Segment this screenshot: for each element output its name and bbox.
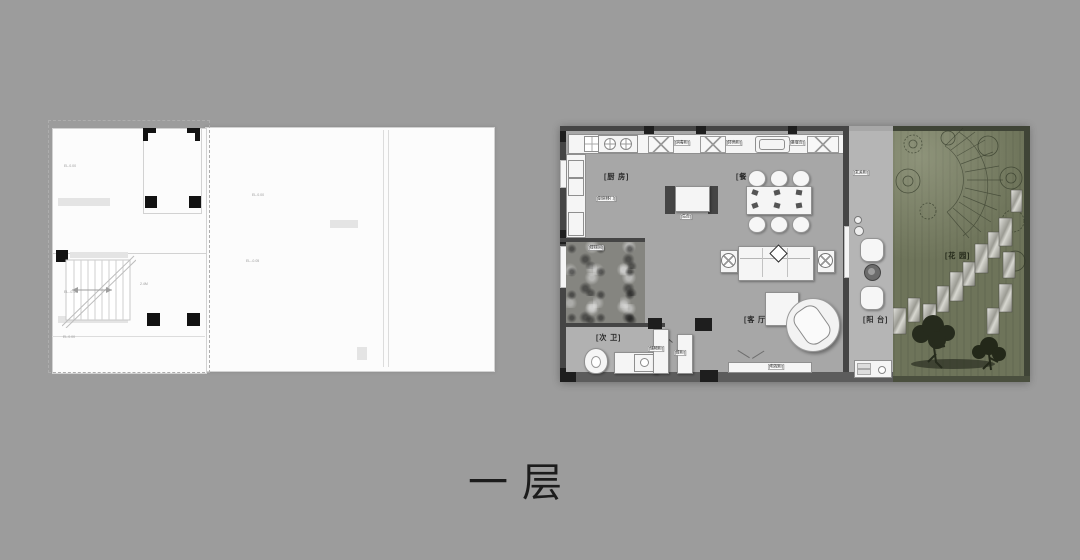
floor-title: 一层	[468, 450, 576, 508]
kitchen-cabinet-x	[648, 136, 674, 153]
cad-annotation: EL.0.00	[252, 193, 264, 197]
stair-label: [楼梯间]	[588, 245, 604, 250]
balcony-plant-pot	[854, 226, 864, 236]
table-setting	[796, 203, 803, 209]
table-setting	[796, 190, 803, 196]
cad-column	[187, 128, 200, 141]
toilet-bowl	[591, 356, 601, 368]
dining-chair	[770, 216, 788, 233]
table-lamp	[818, 253, 833, 268]
balcony-table-top	[868, 268, 875, 275]
balcony-chair	[860, 238, 884, 262]
bath-label: [次 卫]	[596, 332, 621, 342]
cad-inner-wall	[388, 130, 389, 367]
balcony-plant-pot	[854, 216, 862, 224]
cad-column	[143, 128, 156, 141]
stove-burner	[604, 138, 616, 150]
cad-column	[189, 196, 201, 208]
kitchen-cabinet-x	[807, 136, 839, 153]
dining-chair	[792, 216, 810, 233]
hall-cabinet-label: [储物柜]	[648, 346, 664, 351]
island-console	[675, 186, 710, 212]
cabinet-label: [消毒柜]	[674, 140, 690, 145]
wall-bottom	[560, 372, 893, 382]
kitchen-appliance	[568, 178, 584, 196]
cad-annotation: 2.4M	[140, 282, 148, 286]
kitchen-door-label: [厨房移门]	[596, 196, 616, 201]
cad-annotation: EL.-0.05	[64, 290, 77, 294]
garden-pergola-fan	[945, 128, 1003, 238]
kitchen-appliance	[568, 160, 584, 178]
dining-chair	[748, 170, 766, 187]
cad-inner-wall	[383, 130, 384, 367]
balcony-label: [阳 台]	[863, 314, 888, 324]
dining-chair	[748, 216, 766, 233]
sofa-divider	[762, 248, 763, 277]
dining-chair	[770, 170, 788, 187]
sideboard-sink-basin	[759, 139, 785, 150]
tv-cabinet-label: [电视柜]	[768, 364, 784, 369]
wall-column	[700, 370, 718, 382]
screenshot-canvas: EL.0.00 EL.-0.05 EL.0.00 EL.-0.05 2.4M E…	[0, 0, 1080, 560]
cad-annotation: EL.0.00	[64, 164, 76, 168]
table-lamp	[721, 253, 736, 268]
left-cad-floor-plan: EL.0.00 EL.-0.05 EL.0.00 EL.-0.05 2.4M E…	[48, 120, 493, 373]
cad-column	[147, 313, 160, 326]
wash-unit-basin	[878, 366, 886, 374]
entry-cabinet-label: [玄关柜]	[853, 170, 869, 175]
wash-unit-drawer	[857, 369, 871, 375]
wall-column	[695, 318, 712, 331]
island-label: [岛台]	[680, 214, 692, 219]
kitchen-label: [厨 房]	[604, 171, 629, 181]
island-end-panel	[665, 186, 675, 214]
bath-sink-basin	[640, 358, 649, 367]
hall-cabinet	[653, 329, 669, 374]
balcony-chair	[860, 286, 884, 310]
stair-stone-texture	[566, 242, 645, 325]
garden-label: [花 园]	[945, 250, 970, 260]
cad-column	[187, 313, 200, 326]
cabinet-label: [备餐台]	[789, 140, 805, 145]
cad-annotation: EL.-0.05	[246, 259, 259, 263]
cabinet-label: [转角柜]	[726, 140, 742, 145]
fridge	[568, 212, 584, 236]
kitchen-cabinet-x	[700, 136, 726, 153]
dining-chair	[792, 170, 810, 187]
wall-stair-top	[560, 238, 645, 242]
cad-wall-band	[58, 198, 110, 206]
cad-wall-stub	[330, 220, 358, 228]
hall-cabinet-label: [鞋柜]	[674, 350, 686, 355]
cad-column	[145, 196, 157, 208]
stove-burner	[620, 138, 632, 150]
wall-column	[648, 318, 662, 329]
right-rendered-floor-plan: [花 园] [消毒柜] [转角柜] [备餐台] [厨 房] [厨房	[560, 126, 1029, 382]
cad-annotation: EL.0.00	[63, 335, 75, 339]
cad-wall-stub	[357, 347, 367, 360]
cad-large-room	[205, 127, 495, 372]
